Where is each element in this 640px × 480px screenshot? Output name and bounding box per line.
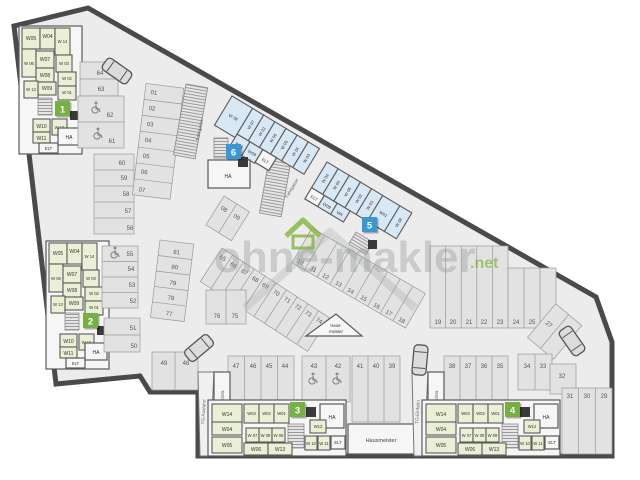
parking-spot-number: 47 [233,364,240,370]
parking-spot-number: 38 [449,364,456,370]
parking-spot-number: 51 [130,326,137,332]
parking-group-39-41: 41 40 39 [352,356,400,422]
storage-block-2 [46,241,109,369]
parking-spot-number: 29 [601,394,608,400]
room-label: W09 [42,86,53,92]
room-label: W 07 [248,433,258,438]
parking-spot-number: 19 [435,320,442,326]
room-label: HA [225,174,233,180]
room-label: ELT [45,146,53,151]
parking-spot-number: 21 [466,320,473,326]
parking-spot-number: 24 [513,320,520,326]
marker-label: 4 [510,406,516,417]
parking-spot-number: 56 [127,226,134,232]
marker-label: 1 [60,105,66,116]
room-label: W05 [222,443,233,449]
caretaker-label: meister [329,329,343,334]
parking-spot-number: 58 [123,192,130,198]
room-label: W10 [36,124,47,130]
parking-group-44-47: 47 46 45 44 [228,356,294,400]
room-label: W 03 [59,61,69,66]
room-label: W02 [262,411,271,416]
parking-spot-number: 43 [311,364,318,370]
room-label: W 01 [62,90,72,95]
room-label: W 02 [62,76,72,81]
parking-spot-number: 45 [266,364,273,370]
parking-spot-number: 37 [465,364,472,370]
parking-spot-number: 42 [335,364,342,370]
parking-spot-number: 25 [529,320,536,326]
parking-spot-number: 76 [214,314,221,320]
marker-label: 2 [88,317,93,328]
room-label: W14 [222,412,233,418]
room-label: W 14 [58,39,68,44]
parking-group-75-76: 76 75 [206,290,246,324]
marker-label: 5 [367,221,373,232]
parking-spot-number: 64 [97,71,104,77]
stairs-icon [214,138,228,158]
caretaker-label: Hausmeister [366,438,397,444]
room-label: W 08 [261,433,271,438]
parking-group-29-31: 31 30 29 [562,388,612,454]
room-label: W 13 [26,87,36,92]
room-label: W08 [40,73,51,79]
parking-spot-number: 61 [109,139,116,145]
watermark-text: ohne-makler [214,233,476,282]
parking-spot-number: 54 [128,267,135,273]
parking-spot-number: 34 [524,364,531,370]
elevator-icon [306,407,316,417]
room-label: W01 [277,411,286,416]
parking-spot-number: 60 [119,161,126,167]
parking-spot-number: 48 [183,361,190,367]
parking-group-42-43: 43 42 [302,356,350,402]
car-icon [412,344,429,375]
parking-spot-number: 49 [161,361,168,367]
watermark-tld: .net [470,255,499,272]
room-label: W13 [275,447,286,453]
parking-spot-number: 22 [481,320,488,326]
parking-spot-number: 39 [389,364,396,370]
parking-spot-number: 31 [567,394,574,400]
parking-spot-number: 44 [282,364,289,370]
parking-spot-number: 41 [357,364,364,370]
storage-block-3: W14 W03 W02 W01 HA W04 W 07 W 08 W 09 W1… [208,400,346,456]
parking-spot-number: 30 [584,394,591,400]
room-label: W03 [247,411,256,416]
parking-spot-number: 33 [540,364,547,370]
parking-spot-number: 20 [450,320,457,326]
parking-spot-number: 53 [129,283,136,289]
room-label: W12 [314,424,323,429]
floorplan-svg: W05 W04 W 14 W 06 W07 W 03 W08 W 02 W09 … [0,0,640,480]
room-label: ELT [334,440,342,445]
room-label: W 10 [306,441,316,446]
room-label: W 09 [274,433,284,438]
parking-spot-number: 59 [121,176,128,182]
parking-spot-number: 36 [481,364,488,370]
marker-label: 6 [231,148,236,159]
parking-spot-number: 50 [131,344,138,350]
room-label: W 06 [24,61,34,66]
parking-spot-number: 35 [497,364,504,370]
marker-label: 3 [295,406,300,417]
storage-block-1: W05 W04 W 14 W 06 W07 W 03 W08 W 02 W09 … [19,26,82,154]
room-label: W06 [251,447,262,453]
parking-spot-number: 62 [107,113,114,119]
room-label: W04 [42,34,53,40]
parking-spot-number: 32 [559,374,566,380]
room-label: W04 [222,427,233,433]
caretaker-label: Haus- [330,323,342,328]
storage-block-4 [422,400,560,456]
parking-group-35-38: 38 37 36 35 [444,356,508,402]
room-label: HA [329,415,337,421]
parking-spot-number: 40 [373,364,380,370]
room-label: W11 [37,136,47,142]
parking-spot-number: 63 [98,87,105,93]
parking-spot-number: 46 [250,364,257,370]
room-label: W05 [26,36,37,42]
parking-spot-number: 57 [125,209,132,215]
parking-spot-number: 55 [127,252,134,258]
parking-spot-number: 75 [232,314,239,320]
room-label: W 11 [319,441,329,446]
room-label: HA [66,135,74,141]
room-label: W07 [40,57,51,63]
parking-spot-number: 23 [497,320,504,326]
parking-spot-number: 52 [130,299,137,305]
stairs-icon [38,98,52,115]
